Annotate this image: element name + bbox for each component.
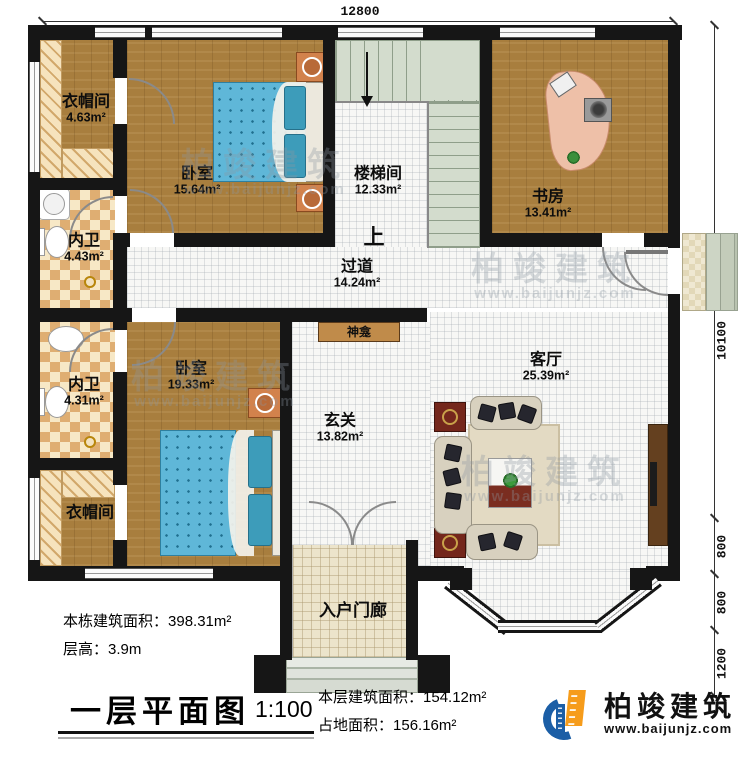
wall-bedroom-foyer [280,322,292,566]
wall-right-lower [668,294,680,580]
floor-area-line: 本层建筑面积：154.12m² [318,686,486,707]
stairs-landing [430,41,478,100]
building-area-label: 本栋建筑面积： [63,613,168,630]
room-name: 衣帽间 [66,506,114,523]
table-ornament [442,409,458,425]
room-label-entry-porch: 入户门廊 [319,602,387,620]
pillow [248,436,272,488]
room-label-bedroom-top: 卧室 15.64m² [174,167,221,198]
wardrobe [40,40,62,180]
wall-stair-study [480,40,492,233]
room-name: 内卫 [64,378,104,395]
floor-plan: 12800 10100 800 800 1200 上 [0,0,750,758]
top-dimension-label: 12800 [320,4,400,19]
side-porch-tile [682,233,706,311]
wall-bath-cloak-bottom [28,458,115,470]
bay-post [630,568,652,590]
room-name: 书房 [525,190,572,207]
right-dimension-label: 1200 [715,634,730,694]
stairs-rail [427,101,429,248]
room-label-living-room: 客厅 25.39m² [523,353,570,384]
lamp [302,57,322,77]
cushion [444,492,462,510]
plant [566,150,581,165]
window [500,27,595,38]
room-name: 客厅 [523,353,570,370]
room-label-hallway: 过道 14.24m² [334,260,381,291]
brand-name: 柏竣建筑 [604,692,736,721]
window [152,27,282,38]
pillow [284,134,306,178]
wall-bath-bedroom-b [113,372,127,485]
floor-height-value: 3.9m [108,641,141,658]
sofa-left [434,436,472,534]
table-ornament [442,535,458,551]
brand-logo-icon [543,688,597,748]
cushion [442,467,461,486]
room-name: 内卫 [64,234,104,251]
room-label-cloakroom-bottom: 衣帽间 [66,506,114,523]
stairs-rail [335,101,429,103]
plan-scale: 1:100 [255,696,313,723]
cushion [517,404,538,425]
room-area: 19.33m² [168,379,215,393]
tv [650,462,657,506]
stairs-up-label: 上 [364,221,385,251]
wardrobe [62,470,115,498]
floor-height-label: 层高： [63,641,108,658]
wall-bath-hall [113,240,127,308]
room-name: 过道 [334,260,381,277]
room-area: 25.39m² [523,370,570,384]
pillow [248,494,272,546]
right-dimension-label: 10100 [715,306,730,376]
room-area: 15.64m² [174,184,221,198]
room-name: 楼梯间 [354,167,402,184]
land-area-label: 占地面积： [318,717,393,734]
sofa-top [470,396,542,430]
land-area-value: 156.16m² [393,717,456,734]
room-area: 13.82m² [317,431,364,445]
shower-drain [84,276,96,288]
speaker [590,101,607,118]
sink-basin [43,193,65,215]
wardrobe [40,470,62,566]
room-label-stairwell: 楼梯间 12.33m² [354,167,402,198]
brand-url: www.baijunjz.com [604,721,736,736]
bay-post [450,568,472,590]
land-area-line: 占地面积：156.16m² [318,714,456,735]
top-dimension-line [42,21,674,22]
cushion [444,444,463,463]
stairs-arrow-head [361,96,373,107]
wall-study-bottom-b [644,233,680,247]
cushion [477,403,497,423]
wardrobe [62,148,115,180]
room-label-study: 书房 13.41m² [525,190,572,221]
right-dimension-label: 800 [715,573,730,633]
wall-bedroom-top-bottom-b [174,233,335,247]
wall-bedroom-bottom-top-a [113,308,132,322]
building-area-line: 本栋建筑面积：398.31m² [63,610,231,631]
wall-hall-bath-bottom [28,308,115,322]
wall-bedroom-bottom-top-b [176,308,280,322]
pillow [284,86,306,130]
wall-cloak-bath-top [28,178,115,190]
right-dimension-label: 800 [715,517,730,577]
window [29,62,40,172]
plan-title: 一层平面图 [70,686,250,731]
cushion [478,533,497,552]
stairs-right-run [428,102,480,248]
end-table [434,402,466,432]
room-label-bath-bottom: 内卫 4.31m² [64,378,104,409]
room-name: 玄关 [317,414,364,431]
room-area: 4.31m² [64,395,104,409]
step-post [254,655,286,693]
floor-height-line: 层高：3.9m [63,638,141,659]
plant [502,472,519,489]
lamp [302,189,322,209]
room-area: 12.33m² [354,184,402,198]
room-label-bedroom-bottom: 卧室 19.33m² [168,362,215,393]
brand-text: 柏竣建筑 www.baijunjz.com [604,692,736,736]
window [85,568,213,579]
room-name: 卧室 [168,362,215,379]
building-area-value: 398.31m² [168,613,231,630]
room-label-foyer: 玄关 13.82m² [317,414,364,445]
floor-area-label: 本层建筑面积： [318,689,423,706]
title-underline [58,731,314,734]
room-name: 入户门廊 [319,602,387,620]
room-area: 13.41m² [525,207,572,221]
wall-study-bottom-a [480,233,602,247]
window [29,478,40,560]
wall-cloak-bedroom-b [113,124,127,196]
sofa-bottom [466,524,538,560]
bed-mattress [160,430,236,556]
cushion [503,531,523,551]
room-label-cloakroom-top: 衣帽间 4.63m² [62,95,110,126]
room-label-bath-top: 内卫 4.43m² [64,234,104,265]
cushion [498,402,517,421]
room-name: 卧室 [174,167,221,184]
title-underline-shadow [58,737,314,739]
logo-building-blue [556,704,565,732]
window [95,27,145,38]
porch-wall-right [406,540,418,660]
wall-right-upper [668,25,680,248]
room-name: 衣帽间 [62,95,110,112]
shrine-box: 神龛 [318,322,400,342]
shower-drain [84,436,96,448]
window [338,27,423,38]
bay-window-center [498,620,602,633]
wall-cloak-bedroom-c [113,540,127,566]
wall-bedroom-stair [323,40,335,233]
hallway-floor [127,247,668,308]
room-area: 4.43m² [64,251,104,265]
room-area: 14.24m² [334,277,381,291]
lamp [255,393,275,413]
room-area: 4.63m² [62,112,110,126]
floor-area-value: 154.12m² [423,689,486,706]
wall-cloak-bedroom-a [113,40,127,78]
wall-bath-bedroom-a [113,322,127,330]
stairs-direction-arrow [366,52,368,98]
wall-foyer-top [280,308,427,322]
side-porch-steps [706,233,738,311]
nightstand [248,388,282,418]
